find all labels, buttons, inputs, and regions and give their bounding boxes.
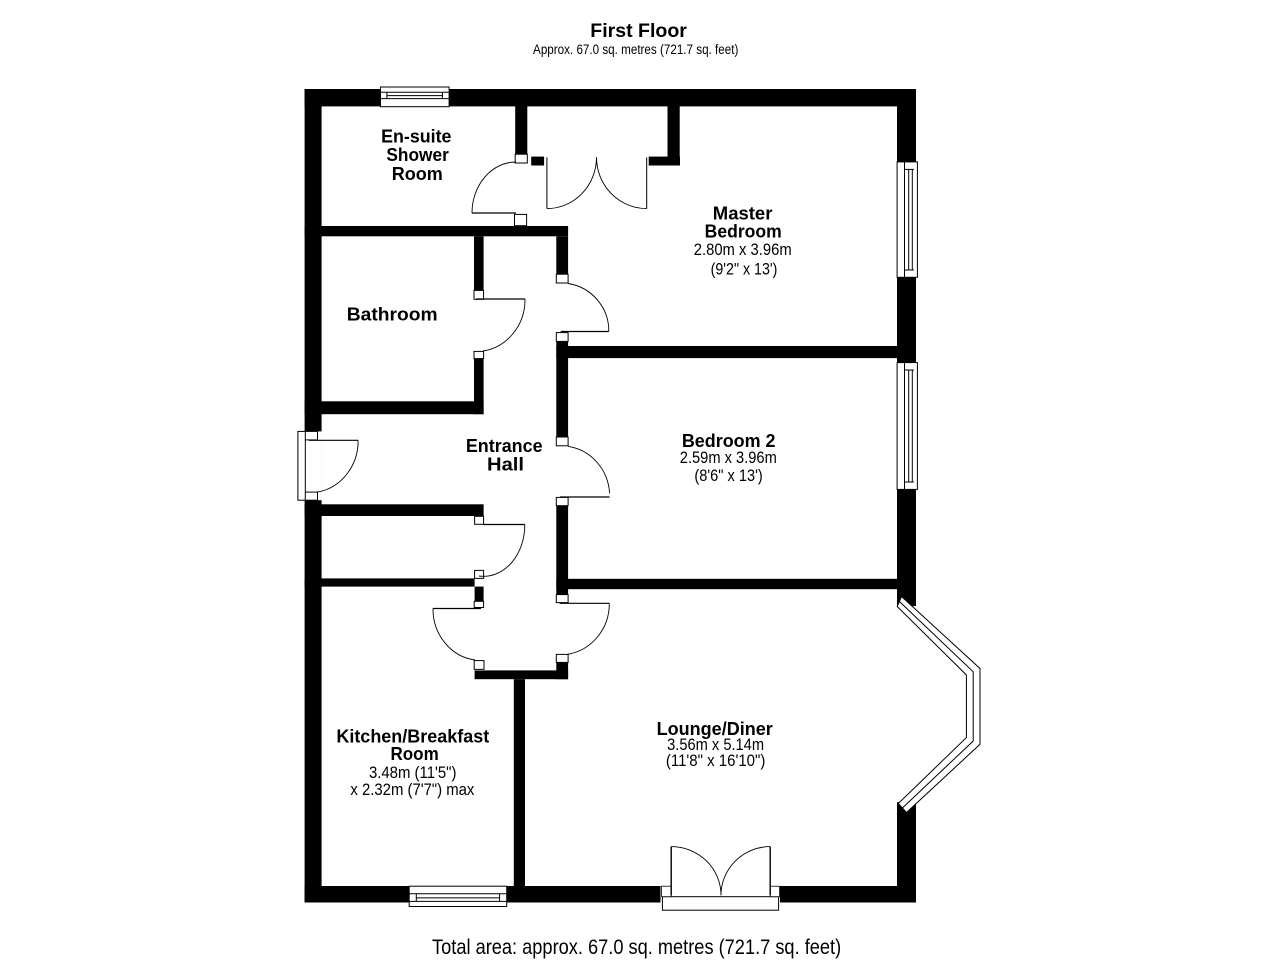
svg-text:En-suite: En-suite bbox=[381, 127, 451, 147]
svg-text:Room: Room bbox=[391, 744, 439, 764]
svg-text:2.59m x 3.96m: 2.59m x 3.96m bbox=[680, 448, 777, 467]
svg-text:Shower: Shower bbox=[386, 145, 448, 165]
svg-text:Approx. 67.0 sq. metres (721.7: Approx. 67.0 sq. metres (721.7 sq. feet) bbox=[533, 42, 738, 57]
svg-text:Master: Master bbox=[713, 204, 773, 224]
svg-text:(8'6" x 13'): (8'6" x 13') bbox=[694, 466, 762, 485]
svg-text:First Floor: First Floor bbox=[590, 20, 687, 42]
svg-text:x 2.32m (7'7") max: x 2.32m (7'7") max bbox=[350, 780, 475, 799]
svg-text:(9'2" x 13'): (9'2" x 13') bbox=[711, 259, 778, 278]
svg-text:Hall: Hall bbox=[487, 455, 524, 475]
svg-text:Bathroom: Bathroom bbox=[347, 305, 438, 325]
svg-text:Total area: approx. 67.0 sq. m: Total area: approx. 67.0 sq. metres (721… bbox=[432, 936, 841, 959]
svg-text:2.80m x 3.96m: 2.80m x 3.96m bbox=[694, 240, 792, 259]
svg-text:Bedroom: Bedroom bbox=[705, 222, 782, 242]
svg-text:Room: Room bbox=[392, 164, 443, 184]
svg-text:Entrance: Entrance bbox=[466, 436, 543, 456]
svg-text:(11'8" x 16'10"): (11'8" x 16'10") bbox=[666, 751, 766, 770]
